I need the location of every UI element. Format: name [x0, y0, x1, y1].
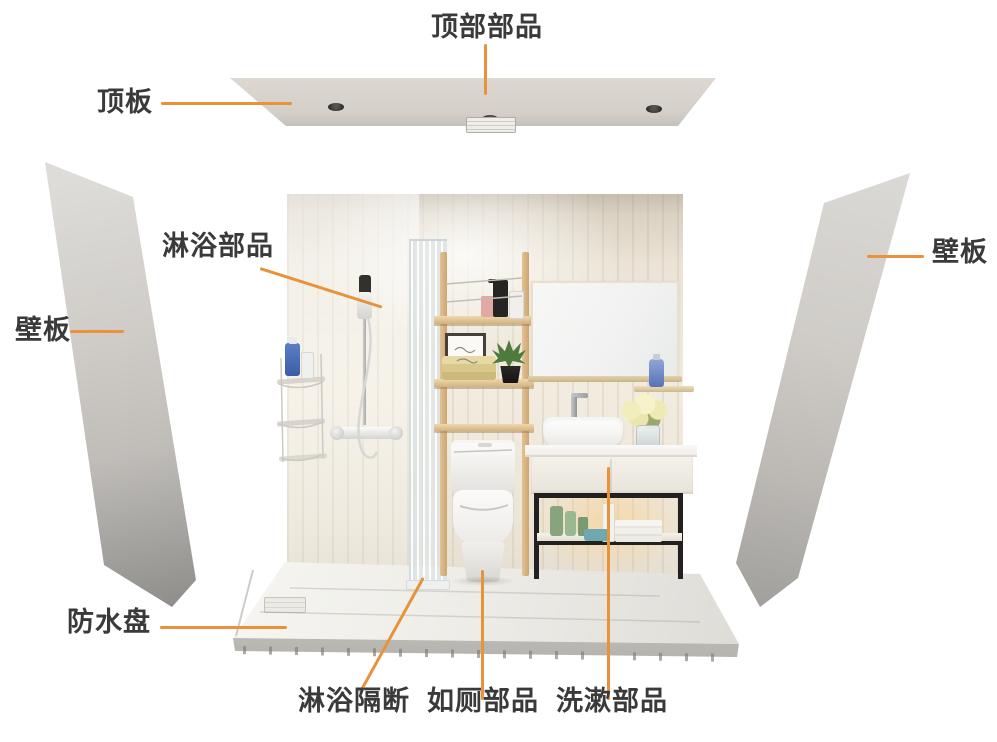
wall-panel-left-graphic: [45, 160, 197, 608]
leader-line-wall-panel-left: [70, 330, 124, 333]
ceiling-spotlight: [646, 105, 662, 113]
vanity-cabinet: [531, 457, 693, 494]
label-washing-parts: 洗漱部品: [553, 687, 671, 715]
toilet-bowl: [453, 490, 513, 546]
pan-drain-cover: [264, 597, 306, 613]
vanity-countertop: [525, 445, 697, 457]
label-ceiling-panel: 顶板: [93, 88, 157, 116]
vanity-drawer-seam: [610, 459, 612, 492]
leader-line-ceiling-panel: [161, 102, 292, 105]
ladder-shelf-rail: [440, 252, 447, 576]
label-shower-parts: 淋浴部品: [158, 232, 278, 260]
shower-wall-highlight: [287, 194, 419, 585]
shower-mixer-valve: [335, 427, 397, 439]
vessel-sink: [543, 417, 623, 448]
toilet-flush-button: [478, 443, 492, 447]
partition-floor-track: [406, 580, 450, 590]
caddy-bottle: [301, 352, 314, 379]
label-shower-partition: 淋浴隔断: [294, 687, 414, 715]
leader-line-waterproof-pan: [160, 626, 287, 629]
leader-line-top-parts: [484, 44, 487, 95]
towel-stack: [442, 356, 496, 380]
shampoo-bottle-cap: [289, 337, 297, 344]
toilet-tank: [451, 440, 515, 492]
label-top-parts: 顶部部品: [417, 13, 557, 41]
label-wall-panel-right: 壁板: [928, 238, 992, 266]
ladder-shelf-board: [434, 379, 534, 387]
wall-shelf: [634, 386, 694, 392]
leader-line-wall-panel-right: [867, 255, 924, 258]
shampoo-bottle: [285, 343, 300, 376]
wall-panel-right-graphic: [736, 173, 914, 609]
label-toilet-parts: 如厕部品: [424, 687, 542, 715]
leader-line-washing-parts: [607, 467, 610, 700]
lotion-bottle-cap: [653, 354, 660, 360]
lotion-bottle-blue: [649, 359, 664, 387]
toiletry-pump-bottle: [493, 280, 508, 317]
toiletry-bottle-white: [509, 291, 524, 319]
mixer-knob-right: [389, 426, 403, 440]
pump-spout: [488, 279, 497, 283]
leader-line-toilet-parts: [481, 570, 484, 700]
folded-towels: [615, 520, 662, 542]
ceiling-vent: [466, 117, 516, 133]
shower-head: [357, 292, 372, 319]
mixer-knob-left: [330, 426, 344, 440]
exploded-bathroom-diagram: 顶部部品 顶板 壁板 淋浴部品 防水盘 壁板 淋浴隔断 如厕部品 洗漱部品: [0, 0, 997, 742]
label-waterproof-pan: 防水盘: [60, 608, 158, 636]
ladder-shelf-board: [434, 424, 534, 431]
ceiling-spotlight: [328, 103, 344, 111]
aqua-dish: [584, 529, 609, 541]
green-bottle: [565, 511, 576, 536]
label-wall-panel-left: 壁板: [11, 316, 75, 344]
green-bottle: [550, 506, 563, 536]
